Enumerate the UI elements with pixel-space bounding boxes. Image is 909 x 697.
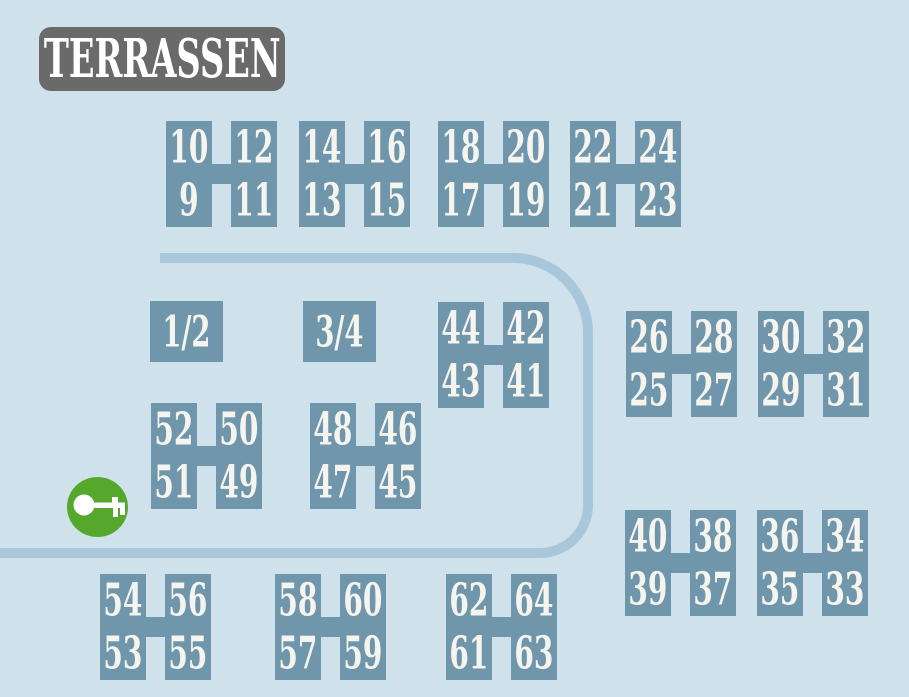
terrace-cell: 48 [310, 403, 356, 456]
terrace-number: 48 [314, 407, 353, 452]
terrace-number: 47 [314, 460, 353, 505]
terrace-number: 64 [515, 578, 554, 623]
terrace-cell: 10 [166, 121, 212, 174]
terrace-cell: 59 [340, 627, 386, 680]
terrace-number: 28 [695, 315, 734, 360]
terrace-connector [670, 354, 693, 374]
terrace-number: 35 [761, 567, 800, 612]
terrace-cell: 33 [822, 563, 868, 616]
terrace-column-right: 20 19 [503, 121, 549, 227]
terrace-column-right: 56 55 [165, 574, 211, 680]
terrace-connector [614, 164, 637, 184]
terrace-number: 61 [450, 631, 489, 676]
terrace-number: 12 [235, 125, 274, 170]
terrace-number: 36 [761, 514, 800, 559]
terrace-cell: 9 [166, 174, 212, 227]
terrace-cell: 61 [446, 627, 492, 680]
terrace-cell: 24 [635, 121, 681, 174]
terrace-number: 40 [629, 514, 668, 559]
terrace-number: 27 [695, 368, 734, 413]
terrace-cell: 32 [823, 311, 869, 364]
terrace-number: 46 [379, 407, 418, 452]
terrace-cell: 50 [216, 403, 262, 456]
terrace-column-left: 30 29 [758, 311, 804, 417]
terrace-cell: 23 [635, 174, 681, 227]
terrace-cell: 54 [100, 574, 146, 627]
terrace-connector [343, 164, 366, 184]
terrace-number: 1/2 [162, 310, 210, 353]
terrace-cell: 35 [757, 563, 803, 616]
terrace-cell: 40 [625, 510, 671, 563]
terrace-connector [669, 553, 692, 573]
terrace-cell: 42 [503, 302, 549, 355]
terrace-cell: 30 [758, 311, 804, 364]
terrace-cell: 16 [364, 121, 410, 174]
terrace-number: 10 [170, 125, 209, 170]
terrace-number: 41 [507, 359, 546, 404]
terrace-cell: 62 [446, 574, 492, 627]
terrace-number: 17 [442, 178, 481, 223]
terrace-cell: 29 [758, 364, 804, 417]
terrace-cell: 26 [626, 311, 672, 364]
terrace-cell: 58 [275, 574, 321, 627]
map-title-box: TERRASSEN [39, 27, 285, 91]
terrace-block-pair: 14 13 16 15 [299, 121, 410, 227]
terrace-number: 31 [827, 368, 866, 413]
terrace-number: 55 [169, 631, 208, 676]
terrace-number: 14 [303, 125, 342, 170]
terrace-block-pair: 52 51 50 49 [151, 403, 262, 509]
terrace-column-right: 32 31 [823, 311, 869, 417]
terrace-number: 54 [104, 578, 143, 623]
terrace-cell: 63 [511, 627, 557, 680]
terrace-column-right: 38 37 [690, 510, 736, 616]
terrace-cell: 44 [438, 302, 484, 355]
terrace-number: 38 [694, 514, 733, 559]
terrace-cell: 21 [570, 174, 616, 227]
terrace-connector [354, 446, 377, 466]
terrace-cell: 52 [151, 403, 197, 456]
terrace-connector [490, 617, 513, 637]
terrace-number: 32 [827, 315, 866, 360]
terrace-number: 33 [826, 567, 865, 612]
terrace-connector [144, 617, 167, 637]
terrace-block-pair: 10 9 12 11 [166, 121, 277, 227]
terrace-cell: 49 [216, 456, 262, 509]
terrace-column-right: 60 59 [340, 574, 386, 680]
terrace-cell: 27 [691, 364, 737, 417]
terrace-number: 21 [574, 178, 613, 223]
terrace-column-right: 64 63 [511, 574, 557, 680]
terrace-cell: 57 [275, 627, 321, 680]
terrace-number: 43 [442, 359, 481, 404]
terrace-number: 16 [368, 125, 407, 170]
terrace-cell: 41 [503, 355, 549, 408]
terrace-number: 51 [155, 460, 194, 505]
terrace-cell: 28 [691, 311, 737, 364]
terrace-number: 11 [235, 178, 274, 223]
terrace-column-left: 44 43 [438, 302, 484, 408]
terrace-number: 42 [507, 306, 546, 351]
terrace-number: 58 [279, 578, 318, 623]
terrace-column-right: 28 27 [691, 311, 737, 417]
terrace-column-left: 40 39 [625, 510, 671, 616]
terrace-cell: 19 [503, 174, 549, 227]
terrace-cell: 20 [503, 121, 549, 174]
terrace-number: 25 [630, 368, 669, 413]
terrace-cell: 64 [511, 574, 557, 627]
terrace-column-left: 54 53 [100, 574, 146, 680]
terrace-connector [801, 553, 824, 573]
terrace-number: 19 [507, 178, 546, 223]
terrace-cell: 43 [438, 355, 484, 408]
terrace-column-left: 14 13 [299, 121, 345, 227]
terrace-column-right: 46 45 [375, 403, 421, 509]
terrace-block-pair: 62 61 64 63 [446, 574, 557, 680]
terrace-cell: 34 [822, 510, 868, 563]
terrace-number: 49 [220, 460, 259, 505]
terrace-block-pair: 54 53 56 55 [100, 574, 211, 680]
terrace-column-right: 50 49 [216, 403, 262, 509]
terrace-number: 56 [169, 578, 208, 623]
terrace-number: 22 [574, 125, 613, 170]
terrace-number: 45 [379, 460, 418, 505]
terrassen-site-map: TERRASSEN 10 9 12 11 [0, 0, 909, 697]
terrace-cell: 36 [757, 510, 803, 563]
terrace-number: 18 [442, 125, 481, 170]
terrace-number: 50 [220, 407, 259, 452]
terrace-block-pair: 58 57 60 59 [275, 574, 386, 680]
terrace-number: 24 [639, 125, 678, 170]
terrace-column-left: 10 9 [166, 121, 212, 227]
terrace-block-pair: 36 35 34 33 [757, 510, 868, 616]
terrace-number: 57 [279, 631, 318, 676]
terrace-block-pair: 22 21 24 23 [570, 121, 681, 227]
terrace-block-pair: 18 17 20 19 [438, 121, 549, 227]
terrace-cell: 15 [364, 174, 410, 227]
map-title: TERRASSEN [44, 32, 281, 86]
terrace-column-left: 36 35 [757, 510, 803, 616]
terrace-column-right: 34 33 [822, 510, 868, 616]
terrace-column-right: 12 11 [231, 121, 277, 227]
terrace-column-right: 24 23 [635, 121, 681, 227]
terrace-block-pair: 48 47 46 45 [310, 403, 421, 509]
terrace-number: 23 [639, 178, 678, 223]
terrace-connector [482, 345, 505, 365]
terrace-number: 44 [442, 306, 481, 351]
terrace-number: 63 [515, 631, 554, 676]
terrace-cell: 37 [690, 563, 736, 616]
terrace-cell: 39 [625, 563, 671, 616]
terrace-cell: 60 [340, 574, 386, 627]
terrace-number: 3/4 [315, 310, 363, 353]
terrace-cell: 18 [438, 121, 484, 174]
terrace-number: 9 [179, 178, 198, 223]
terrace-number: 34 [826, 514, 865, 559]
terrace-cell: 13 [299, 174, 345, 227]
key-icon [67, 477, 128, 537]
terrace-connector [195, 446, 218, 466]
terrace-number: 60 [344, 578, 383, 623]
terrace-block-pair: 26 25 28 27 [626, 311, 737, 417]
terrace-cell: 22 [570, 121, 616, 174]
terrace-connector [319, 617, 342, 637]
terrace-column-left: 22 21 [570, 121, 616, 227]
terrace-cell: 56 [165, 574, 211, 627]
terrace-number: 29 [762, 368, 801, 413]
terrace-column-left: 58 57 [275, 574, 321, 680]
terrace-cell: 45 [375, 456, 421, 509]
terrace-connector [802, 354, 825, 374]
terrace-block-pair: 40 39 38 37 [625, 510, 736, 616]
terrace-cell: 12 [231, 121, 277, 174]
terrace-column-left: 62 61 [446, 574, 492, 680]
terrace-cell: 11 [231, 174, 277, 227]
terrace-number: 13 [303, 178, 342, 223]
terrace-cell: 46 [375, 403, 421, 456]
combined-terrace-block: 3/4 [303, 301, 376, 362]
terrace-cell: 51 [151, 456, 197, 509]
terrace-connector [210, 164, 233, 184]
combined-terrace-block: 1/2 [150, 301, 223, 362]
terrace-number: 15 [368, 178, 407, 223]
terrace-number: 26 [630, 315, 669, 360]
terrace-cell: 31 [823, 364, 869, 417]
terrace-cell: 53 [100, 627, 146, 680]
terrace-number: 37 [694, 567, 733, 612]
terrace-connector [482, 164, 505, 184]
terrace-cell: 17 [438, 174, 484, 227]
terrace-cell: 55 [165, 627, 211, 680]
terrace-number: 62 [450, 578, 489, 623]
terrace-cell: 47 [310, 456, 356, 509]
terrace-number: 52 [155, 407, 194, 452]
key-marker [67, 477, 128, 537]
terrace-block-pair: 44 43 42 41 [438, 302, 549, 408]
terrace-number: 39 [629, 567, 668, 612]
terrace-number: 59 [344, 631, 383, 676]
terrace-cell: 38 [690, 510, 736, 563]
terrace-number: 20 [507, 125, 546, 170]
terrace-column-left: 26 25 [626, 311, 672, 417]
terrace-column-right: 42 41 [503, 302, 549, 408]
terrace-column-left: 52 51 [151, 403, 197, 509]
terrace-number: 30 [762, 315, 801, 360]
terrace-cell: 14 [299, 121, 345, 174]
terrace-number: 53 [104, 631, 143, 676]
terrace-block-pair: 30 29 32 31 [758, 311, 869, 417]
terrace-cell: 25 [626, 364, 672, 417]
terrace-column-left: 18 17 [438, 121, 484, 227]
terrace-column-left: 48 47 [310, 403, 356, 509]
terrace-column-right: 16 15 [364, 121, 410, 227]
